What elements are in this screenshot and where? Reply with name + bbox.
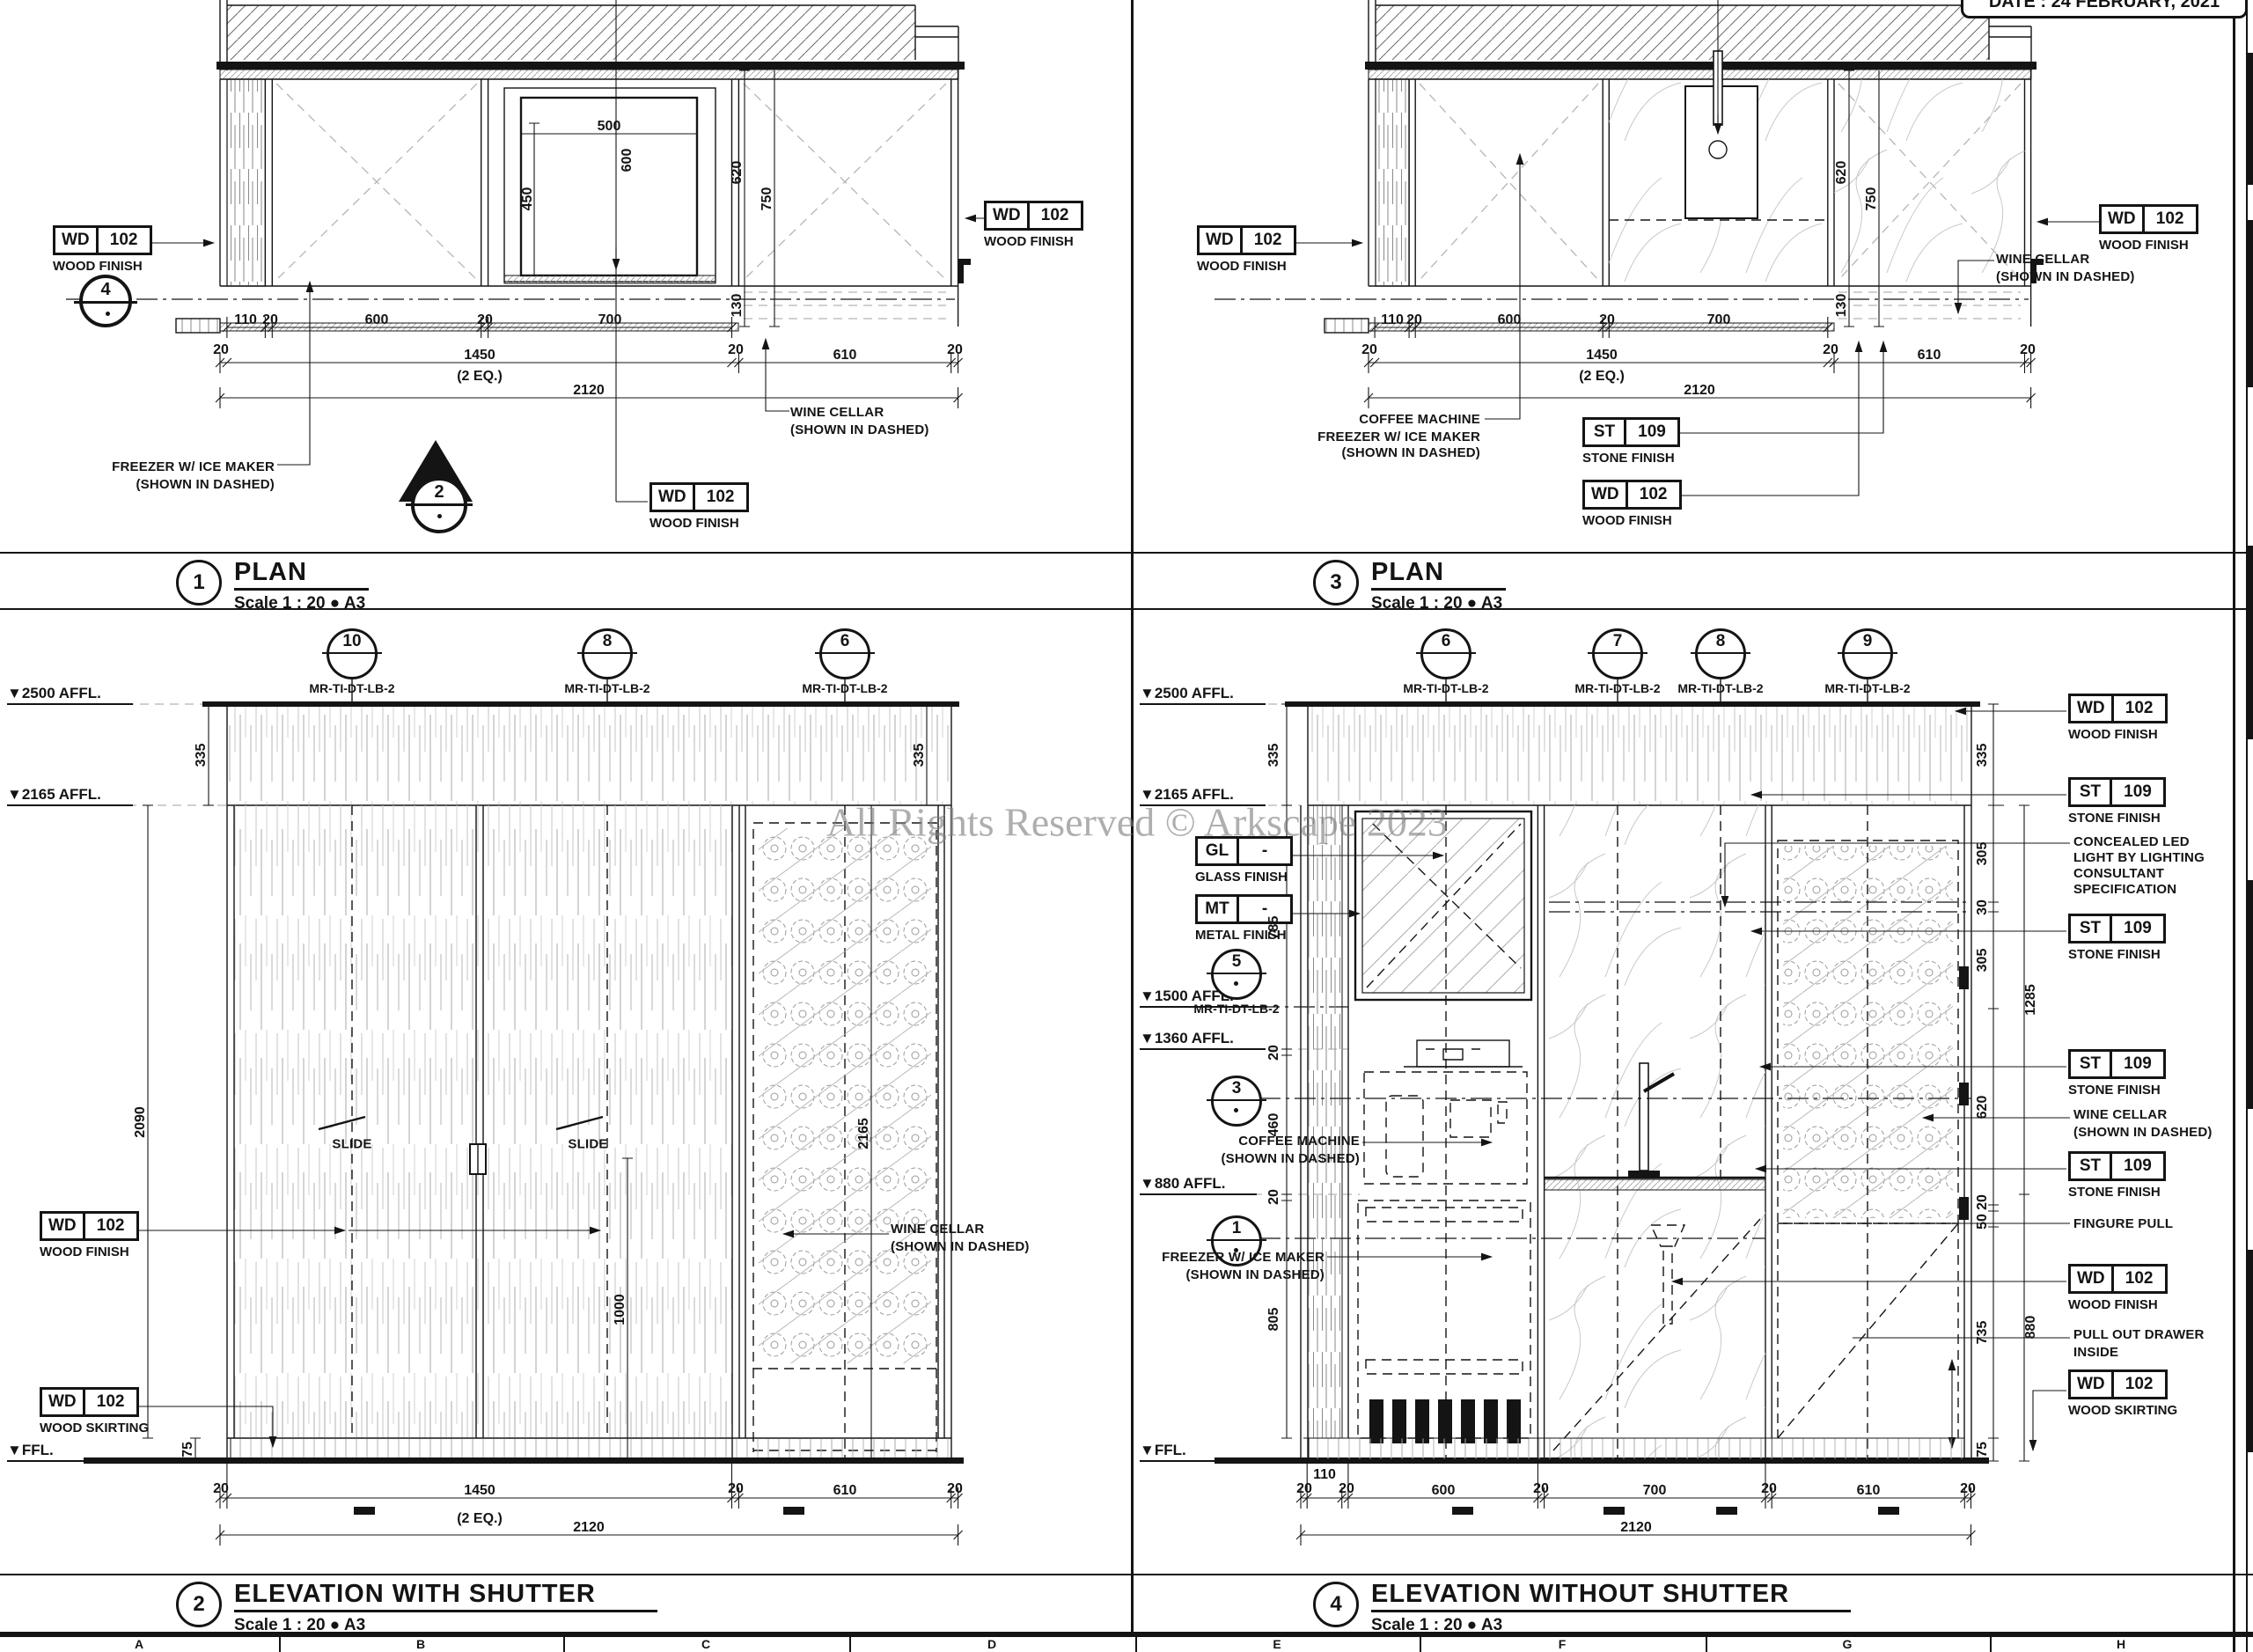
tag-code: GL: [1198, 839, 1239, 863]
tag-label: GLASS FINISH: [1195, 870, 1293, 885]
grid-letter-c: C: [701, 1637, 710, 1651]
marker-number: 5: [1214, 952, 1259, 972]
tag-label: WOOD FINISH: [984, 234, 1083, 249]
finish-tag-st109-e4-1: ST109 STONE FINISH: [2068, 777, 2166, 826]
dim: 750: [760, 187, 775, 211]
detail-marker-6-e4: 6 MR-TI-DT-LB-2: [1393, 628, 1499, 695]
grid-letter-f: F: [1559, 1637, 1567, 1651]
finish-tag-st109-e4-4: ST109 STONE FINISH: [2068, 1151, 2166, 1200]
dim: 750: [1864, 187, 1880, 211]
dim: 1450: [1586, 348, 1618, 363]
dim: 600: [1498, 312, 1522, 328]
dim: 335: [194, 744, 209, 767]
dim: 20: [1361, 342, 1377, 358]
tag-num: 102: [2114, 1267, 2165, 1291]
dim: 600: [365, 312, 389, 328]
dim: 75: [180, 1442, 196, 1457]
view-number: 4: [1313, 1582, 1359, 1627]
level-880-e4: ▼880 AFFL.: [1140, 1175, 1257, 1195]
marker-number: 9: [1845, 632, 1890, 651]
finish-tag-wd102-e4-top: WD102 WOOD FINISH: [2068, 694, 2168, 742]
marker-number: 7: [1595, 632, 1640, 651]
view-title-text: PLAN: [1371, 560, 1506, 591]
dim: 20: [213, 1481, 229, 1497]
dim: 20: [1599, 312, 1615, 328]
coffee-label-e4-2: (SHOWN IN DASHED): [1166, 1151, 1360, 1166]
tag-code: ST: [2071, 780, 2112, 804]
dim: 620: [730, 161, 745, 185]
wine-cellar-label-e2: WINE CELLAR: [891, 1222, 984, 1237]
dim: 700: [598, 312, 622, 328]
tag-num: 102: [2145, 207, 2196, 231]
dim: 1450: [464, 1483, 495, 1499]
dim: 620: [1975, 1096, 1991, 1120]
dim: 20: [1406, 312, 1422, 328]
detail-marker-8: 8 MR-TI-DT-LB-2: [554, 628, 660, 695]
tag-num: 102: [85, 1390, 136, 1414]
finish-tag-wd102-e2-mid: WD102 WOOD FINISH: [40, 1211, 139, 1259]
detail-marker-7-e4: 7 MR-TI-DT-LB-2: [1565, 628, 1670, 695]
tag-num: 109: [2112, 780, 2163, 804]
dim: 20: [1761, 1481, 1777, 1497]
dim: 20: [1975, 1194, 1991, 1210]
dim: 20: [1266, 1045, 1282, 1061]
wine-cellar-label: WINE CELLAR: [790, 405, 884, 420]
dim: 500: [598, 119, 621, 135]
tag-label: WOOD FINISH: [649, 516, 749, 531]
finish-tag-wd102-e2-skirting: WD102 WOOD SKIRTING: [40, 1387, 149, 1435]
finish-tag-wd102-p1-left: WD102 WOOD FINISH: [53, 225, 152, 274]
tag-label: WOOD SKIRTING: [40, 1421, 149, 1435]
dim: 700: [1707, 312, 1731, 328]
tag-code: WD: [55, 228, 99, 253]
dim: 2120: [1684, 383, 1715, 399]
tag-num: 102: [99, 228, 150, 253]
marker-number: 2: [415, 482, 464, 503]
dim: 610: [1918, 348, 1941, 363]
view-scale: Scale 1 : 20 ● A3: [1371, 594, 1506, 613]
dim: (2 EQ.): [457, 1511, 503, 1527]
dim: 20: [1339, 1481, 1354, 1497]
tag-code: WD: [987, 203, 1030, 228]
tag-code: WD: [2071, 696, 2114, 721]
dim: 20: [262, 312, 278, 328]
tag-label: STONE FINISH: [2068, 1083, 2166, 1098]
view-title-text: ELEVATION WITH SHUTTER: [234, 1582, 657, 1612]
dim: 20: [1296, 1481, 1312, 1497]
dim: 130: [730, 294, 745, 318]
dim: 2090: [133, 1106, 149, 1138]
wine-cellar-label-e4: WINE CELLAR: [2073, 1107, 2167, 1122]
tag-label: WOOD FINISH: [1197, 259, 1296, 274]
dim: 880: [2023, 1316, 2039, 1340]
tag-num: 102: [695, 485, 746, 510]
wine-cellar-label-e2-2: (SHOWN IN DASHED): [891, 1239, 1030, 1254]
tag-code: ST: [2071, 1052, 2112, 1076]
right-border: [2233, 0, 2235, 1652]
view-title-elev2: 2 ELEVATION WITH SHUTTER Scale 1 : 20 ● …: [176, 1582, 657, 1635]
tag-label: STONE FINISH: [2068, 947, 2166, 962]
marker-number: 8: [584, 632, 630, 651]
view-title-text: PLAN: [234, 560, 369, 591]
wine-cellar-label-p3-2: (SHOWN IN DASHED): [1996, 269, 2135, 284]
slide-label-1: SLIDE: [332, 1137, 371, 1152]
grid-tick-6: [1706, 1635, 1707, 1652]
detail-marker-8-e4: 8 MR-TI-DT-LB-2: [1668, 628, 1773, 695]
tag-num: -: [1239, 897, 1290, 921]
led-label-4: SPECIFICATION: [2073, 882, 2176, 897]
dim: 305: [1975, 949, 1991, 973]
tag-label: WOOD FINISH: [53, 259, 152, 274]
tag-label: STONE FINISH: [1582, 451, 1680, 466]
dim: 20: [1533, 1481, 1549, 1497]
dim: 600: [1432, 1483, 1456, 1499]
tag-code: ST: [2071, 1154, 2112, 1178]
dim: 305: [1975, 842, 1991, 866]
grid-tick-5: [1420, 1635, 1421, 1652]
finish-tag-wd102-p1-bottom: WD102 WOOD FINISH: [649, 482, 749, 531]
wine-cellar-label2: (SHOWN IN DASHED): [790, 422, 929, 437]
dim: 600: [620, 149, 635, 173]
dim: 335: [1266, 744, 1282, 767]
tag-num: 102: [1030, 203, 1081, 228]
tag-label: WOOD FINISH: [1582, 513, 1682, 528]
side-marker-5: 5 MR-TI-DT-LB-2: [1184, 949, 1289, 1016]
finish-tag-gl: GL- GLASS FINISH: [1195, 836, 1293, 885]
freezer-label-e4: FREEZER W/ ICE MAKER: [1131, 1250, 1325, 1265]
tag-code: MT: [1198, 897, 1239, 921]
tag-num: -: [1239, 839, 1290, 863]
tag-code: WD: [42, 1214, 85, 1238]
dim: 1285: [2023, 984, 2039, 1016]
view-title-plan3: 3 PLAN Scale 1 : 20 ● A3: [1313, 560, 1506, 613]
grid-letter-g: G: [1843, 1637, 1853, 1651]
dim: 1000: [613, 1294, 628, 1325]
tag-num: 102: [1628, 482, 1679, 507]
detail-marker-6: 6 MR-TI-DT-LB-2: [792, 628, 898, 695]
marker-ref: MR-TI-DT-LB-2: [1184, 1002, 1289, 1016]
dim: 2120: [1620, 1520, 1652, 1536]
tag-code: WD: [2071, 1372, 2114, 1397]
dim: 335: [912, 744, 928, 767]
level-ffl-e4: ▼FFL.: [1140, 1442, 1218, 1462]
freezer-label2: (SHOWN IN DASHED): [81, 477, 275, 492]
slide-label-2: SLIDE: [568, 1137, 607, 1152]
dim: 2120: [573, 1520, 605, 1536]
level-1360-e4: ▼1360 AFFL.: [1140, 1030, 1266, 1050]
finish-tag-st109-p3: ST109 STONE FINISH: [1582, 417, 1680, 466]
finish-tag-wd102-e4-skirting: WD102 WOOD SKIRTING: [2068, 1369, 2177, 1418]
tag-num: 109: [1626, 420, 1677, 444]
dim: 30: [1975, 899, 1991, 915]
tag-label: WOOD SKIRTING: [2068, 1403, 2177, 1418]
tag-num: 102: [1243, 228, 1294, 253]
drawer-label-1: PULL OUT DRAWER: [2073, 1327, 2205, 1342]
dim: 610: [1857, 1483, 1881, 1499]
level-2165-e4: ▼2165 AFFL.: [1140, 786, 1266, 806]
grid-tick-2: [563, 1635, 565, 1652]
view-scale: Scale 1 : 20 ● A3: [234, 1616, 657, 1635]
led-label-2: LIGHT BY LIGHTING: [2073, 850, 2205, 865]
tag-code: WD: [2071, 1267, 2114, 1291]
freezer-label-e4-2: (SHOWN IN DASHED): [1131, 1267, 1325, 1282]
coffee-freezer-label2: FREEZER W/ ICE MAKER: [1287, 430, 1480, 444]
tag-label: WOOD FINISH: [40, 1245, 139, 1259]
tag-label: STONE FINISH: [2068, 811, 2166, 826]
dim: 610: [833, 1483, 857, 1499]
view-number: 3: [1313, 560, 1359, 606]
tag-code: WD: [42, 1390, 85, 1414]
marker-number: 6: [1423, 632, 1469, 651]
tag-label: WOOD FINISH: [2068, 1297, 2168, 1312]
grid-letter-h: H: [2117, 1637, 2125, 1651]
triangle-marker-circle: 2: [411, 477, 467, 533]
finish-tag-wd102-p3-right: WD102 WOOD FINISH: [2099, 204, 2198, 253]
level-2165: ▼2165 AFFL.: [7, 786, 133, 806]
tag-num: 102: [2114, 696, 2165, 721]
dim: 1450: [464, 348, 495, 363]
dim: 20: [2020, 342, 2036, 358]
led-label-1: CONCEALED LED: [2073, 834, 2190, 849]
marker-number: 10: [329, 632, 375, 651]
tag-label: STONE FINISH: [2068, 1185, 2166, 1200]
dim: 130: [1834, 294, 1850, 318]
drawer-label-2: INSIDE: [2073, 1345, 2118, 1360]
tag-code: ST: [2071, 916, 2112, 941]
tag-label: WOOD FINISH: [2099, 238, 2198, 253]
date-stamp: DATE : 24 FEBRUARY, 2021: [1961, 0, 2248, 18]
dim: 2165: [856, 1118, 872, 1149]
view-scale: Scale 1 : 20 ● A3: [1371, 1616, 1851, 1635]
plan-title-strip-top-line: [0, 552, 2253, 554]
tag-code: WD: [1585, 482, 1628, 507]
marker-ref: MR-TI-DT-LB-2: [554, 681, 660, 695]
dim: 20: [1266, 1189, 1282, 1205]
finish-tag-st109-e4-2: ST109 STONE FINISH: [2068, 914, 2166, 962]
tag-code: WD: [1200, 228, 1243, 253]
tag-code: WD: [652, 485, 695, 510]
tag-num: 109: [2112, 916, 2163, 941]
dim: 20: [213, 342, 229, 358]
level-2500-e4: ▼2500 AFFL.: [1140, 685, 1266, 705]
detail-marker-10: 10 MR-TI-DT-LB-2: [299, 628, 405, 695]
finish-tag-wd102-e4-mid: WD102 WOOD FINISH: [2068, 1264, 2168, 1312]
marker-ref: MR-TI-DT-LB-2: [299, 681, 405, 695]
view-scale: Scale 1 : 20 ● A3: [234, 594, 369, 613]
led-label-3: CONSULTANT: [2073, 866, 2164, 881]
tag-num: 109: [2112, 1154, 2163, 1178]
coffee-freezer-label: COFFEE MACHINE: [1287, 412, 1480, 427]
dim: 700: [1643, 1483, 1667, 1499]
view-title-elev4: 4 ELEVATION WITHOUT SHUTTER Scale 1 : 20…: [1313, 1582, 1851, 1635]
view-title-text: ELEVATION WITHOUT SHUTTER: [1371, 1582, 1851, 1612]
grid-tick-3: [849, 1635, 851, 1652]
coffee-freezer-label3: (SHOWN IN DASHED): [1287, 445, 1480, 460]
marker-number: 4: [83, 280, 128, 300]
marker-number: 1: [1214, 1219, 1259, 1238]
dim: 20: [728, 342, 744, 358]
marker-ref: MR-TI-DT-LB-2: [1393, 681, 1499, 695]
section-marker-4: 4: [79, 275, 132, 327]
dim: 20: [947, 1481, 963, 1497]
grid-letter-d: D: [987, 1637, 996, 1651]
dim: 735: [1975, 1321, 1991, 1345]
view-number: 2: [176, 1582, 222, 1627]
coffee-label-e4: COFFEE MACHINE: [1166, 1134, 1360, 1149]
dim: 460: [1266, 1113, 1282, 1137]
tag-num: 102: [85, 1214, 136, 1238]
freezer-label: FREEZER W/ ICE MAKER: [81, 459, 275, 474]
view-number: 1: [176, 560, 222, 606]
grid-tick-7: [1990, 1635, 1992, 1652]
elev-title-strip-top-line: [0, 1574, 2253, 1575]
marker-ref: MR-TI-DT-LB-2: [1565, 681, 1670, 695]
grid-letter-b: B: [416, 1637, 425, 1651]
marker-number: 8: [1698, 632, 1743, 651]
marker-number: 3: [1214, 1079, 1259, 1098]
level-2500: ▼2500 AFFL.: [7, 685, 133, 705]
tag-code: WD: [2102, 207, 2145, 231]
dim: 75: [1975, 1442, 1991, 1457]
watermark: All Rights Reserved © Arkscape 2023: [826, 799, 1448, 846]
finish-tag-st109-e4-3: ST109 STONE FINISH: [2068, 1049, 2166, 1098]
dim: 20: [477, 312, 493, 328]
finish-tag-wd102-p1-right: WD102 WOOD FINISH: [984, 201, 1083, 249]
dim: 610: [833, 348, 857, 363]
dim: 20: [1960, 1481, 1976, 1497]
dim: 20: [728, 1481, 744, 1497]
dim: 20: [1823, 342, 1838, 358]
dim: 110: [1381, 312, 1404, 328]
grid-letter-e: E: [1273, 1637, 1281, 1651]
grid-tick-4: [1135, 1635, 1137, 1652]
dim: 450: [520, 187, 536, 211]
wine-cellar-label-p3: WINE CELLAR: [1996, 252, 2089, 267]
tag-label: WOOD FINISH: [2068, 727, 2168, 742]
grid-tick-1: [279, 1635, 281, 1652]
tag-code: ST: [1585, 420, 1626, 444]
clipped-edge-text: [2248, 0, 2253, 1637]
dim: 335: [1975, 744, 1991, 767]
dim: 110: [234, 312, 257, 328]
finish-tag-wd102-p3-left: WD102 WOOD FINISH: [1197, 225, 1296, 274]
dim: 785: [1266, 916, 1282, 940]
level-ffl: ▼FFL.: [7, 1442, 85, 1462]
dim: 805: [1266, 1308, 1282, 1332]
grid-letter-a: A: [135, 1637, 143, 1651]
view-title-plan1: 1 PLAN Scale 1 : 20 ● A3: [176, 560, 369, 613]
wine-cellar-label-e4-2: (SHOWN IN DASHED): [2073, 1125, 2213, 1140]
drawing-sheet: All Rights Reserved © Arkscape 2023 DATE…: [0, 0, 2253, 1652]
marker-ref: MR-TI-DT-LB-2: [1815, 681, 1920, 695]
finish-tag-wd102-p3-bottom: WD102 WOOD FINISH: [1582, 480, 1682, 528]
dim: 2120: [573, 383, 605, 399]
tag-num: 109: [2112, 1052, 2163, 1076]
dim: 620: [1834, 161, 1850, 185]
marker-ref: MR-TI-DT-LB-2: [1668, 681, 1773, 695]
detail-marker-9-e4: 9 MR-TI-DT-LB-2: [1815, 628, 1920, 695]
marker-number: 6: [822, 632, 868, 651]
tag-num: 102: [2114, 1372, 2165, 1397]
dim: (2 EQ.): [1579, 369, 1625, 385]
dim: (2 EQ.): [457, 369, 503, 385]
dim: 50: [1975, 1214, 1991, 1230]
finger-pull-label: FINGURE PULL: [2073, 1216, 2173, 1231]
marker-ref: MR-TI-DT-LB-2: [792, 681, 898, 695]
dim: 110: [1313, 1467, 1336, 1483]
dim: 20: [947, 342, 963, 358]
